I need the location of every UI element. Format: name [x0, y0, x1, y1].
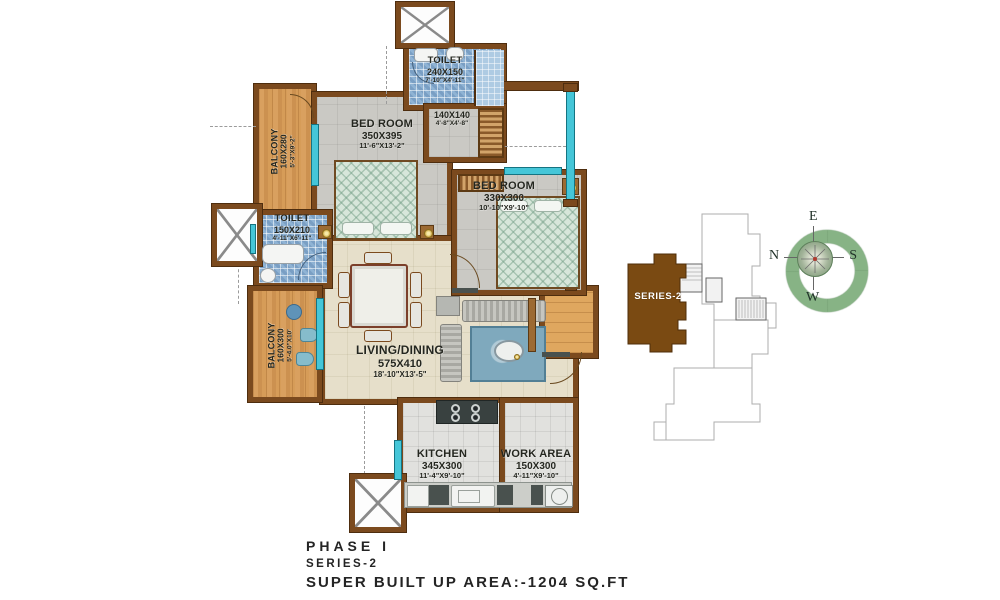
- window: [566, 90, 575, 202]
- door-threshold: [452, 288, 478, 293]
- compass-east-label: E: [809, 209, 818, 225]
- room-label-kitchen: KITCHEN 345X300 11'-4"X9'-10": [396, 448, 488, 481]
- chair: [410, 302, 422, 328]
- room-label-bedroom-2: BED ROOM 330X300 10'-10"X9'-10": [454, 180, 554, 213]
- cross-icon: [355, 479, 401, 527]
- coffee-table: [494, 340, 524, 362]
- room-name: WORK AREA: [501, 448, 571, 461]
- room-size-cm: 575X410: [378, 358, 422, 371]
- pillow: [342, 222, 374, 235]
- keyplan-lower-wing: [666, 368, 760, 440]
- room-label-living: LIVING/DINING 575X410 18'-10"X13'-5": [338, 344, 462, 380]
- window-cap: [564, 200, 577, 206]
- room-label-balcony-bottom: BALCONY 160X300 5'-4.0"X10': [252, 310, 308, 380]
- room-size-ft: 5'-4.0"X10': [286, 329, 293, 362]
- phase-label: PHASE I: [306, 538, 629, 554]
- compass-rose-icon: [797, 241, 833, 277]
- side-table: [436, 296, 460, 316]
- sliding-door: [316, 298, 324, 370]
- dashed-line: [210, 126, 256, 127]
- series-label: SERIES-2: [306, 558, 629, 570]
- main-door-leaf: [528, 298, 536, 352]
- dining-table: [350, 264, 408, 328]
- room-label-toilet-top: TOILET 240X150 7'-10"X4'-11": [410, 56, 480, 85]
- duct-shaft-bottom: [350, 474, 406, 532]
- window: [504, 167, 562, 175]
- bathtub: [262, 244, 304, 264]
- keyplan-mid-wing: [714, 320, 768, 368]
- sink-basin: [458, 490, 480, 503]
- dashed-line: [364, 406, 365, 474]
- bedside-table: [420, 225, 434, 239]
- room-label-work-area: WORK AREA 150X300 4'-11"X9'-10": [494, 448, 578, 481]
- chair: [410, 272, 422, 298]
- room-size-ft: 4'-8"X4'-8": [436, 120, 468, 127]
- burner-icon: [451, 413, 460, 422]
- washing-machine: [545, 485, 573, 507]
- dashed-line: [500, 146, 566, 147]
- wash-basin: [260, 268, 276, 283]
- chair: [364, 330, 392, 342]
- keyplan-jog: [654, 422, 666, 440]
- burner-icon: [451, 404, 460, 413]
- built-up-area-label: SUPER BUILT UP AREA:-1204 SQ.FT: [306, 574, 629, 591]
- chair: [338, 272, 350, 298]
- sink: [451, 485, 495, 507]
- entrance-foyer: [540, 286, 598, 358]
- duct-shaft-top: [396, 2, 454, 48]
- title-block: PHASE I SERIES-2 SUPER BUILT UP AREA:-12…: [306, 538, 629, 591]
- room-size-cm: 150X210: [274, 225, 310, 235]
- cabinet: [407, 485, 429, 507]
- counter-segment: [429, 485, 449, 505]
- room-size-cm: 160X300: [277, 328, 287, 362]
- burner-icon: [471, 404, 480, 413]
- compass-south-label: S: [849, 248, 857, 264]
- decor-dot: [514, 354, 520, 360]
- room-label-balcony-top: BALCONY 160X280 5'-3"X9'-2": [256, 118, 310, 184]
- kitchen-counter: [404, 482, 572, 508]
- room-size-ft: 5'-3"X9'-2": [289, 135, 296, 167]
- stove: [436, 400, 498, 424]
- room-size-cm: 140X140: [434, 110, 470, 120]
- door-threshold: [542, 352, 570, 357]
- dashed-line: [238, 264, 239, 304]
- pillow: [380, 222, 412, 235]
- cross-icon: [401, 7, 449, 43]
- compass-star-icon: [798, 242, 832, 276]
- room-name: LIVING/DINING: [356, 344, 444, 358]
- room-size-ft: 10'-10"X9'-10": [479, 204, 529, 213]
- sliding-door: [311, 124, 319, 186]
- floor-plan-canvas: TOILET 240X150 7'-10"X4'-11" 140X140 4'-…: [0, 0, 1000, 600]
- window-cap: [564, 84, 577, 91]
- chair: [338, 302, 350, 328]
- room-size-ft: 11'-6"X13'-2": [359, 142, 404, 151]
- compass-west-label: W: [806, 290, 819, 306]
- room-size-ft: 18'-10"X13'-5": [373, 370, 426, 379]
- room-name: BED ROOM: [351, 118, 413, 131]
- room-name: KITCHEN: [417, 448, 467, 461]
- washer-drum-icon: [551, 488, 568, 505]
- room-size-ft: 4'-11"X9'-10": [513, 472, 558, 481]
- room-size-cm: 240X150: [427, 67, 463, 77]
- room-name: TOILET: [275, 214, 310, 225]
- burner-icon: [471, 413, 480, 422]
- room-label-toilet-left: TOILET 150X210 4'-11"X6'-11": [256, 214, 328, 243]
- keyplan-series-label: SERIES-2: [627, 291, 689, 302]
- keyplan-core: [706, 278, 722, 302]
- room-size-ft: 7'-10"X4'-11": [425, 77, 464, 84]
- room-label-bedroom-1: BED ROOM 350X395 11'-6"X13'-2": [330, 118, 434, 151]
- keyplan-highlighted-unit: [628, 254, 686, 352]
- chair: [364, 252, 392, 264]
- compass: E N S W: [770, 212, 858, 304]
- room-size-cm: 160X280: [280, 134, 290, 168]
- counter-segment: [497, 485, 513, 505]
- room-size-ft: 11'-4"X9'-10": [419, 472, 464, 481]
- room-name: BED ROOM: [473, 180, 535, 193]
- room-size-ft: 4'-11"X6'-11": [273, 235, 312, 242]
- counter-segment: [531, 485, 543, 505]
- room-name: TOILET: [428, 56, 463, 67]
- compass-north-label: N: [769, 248, 779, 264]
- lamp-icon: [424, 229, 433, 238]
- dashed-line: [386, 46, 387, 104]
